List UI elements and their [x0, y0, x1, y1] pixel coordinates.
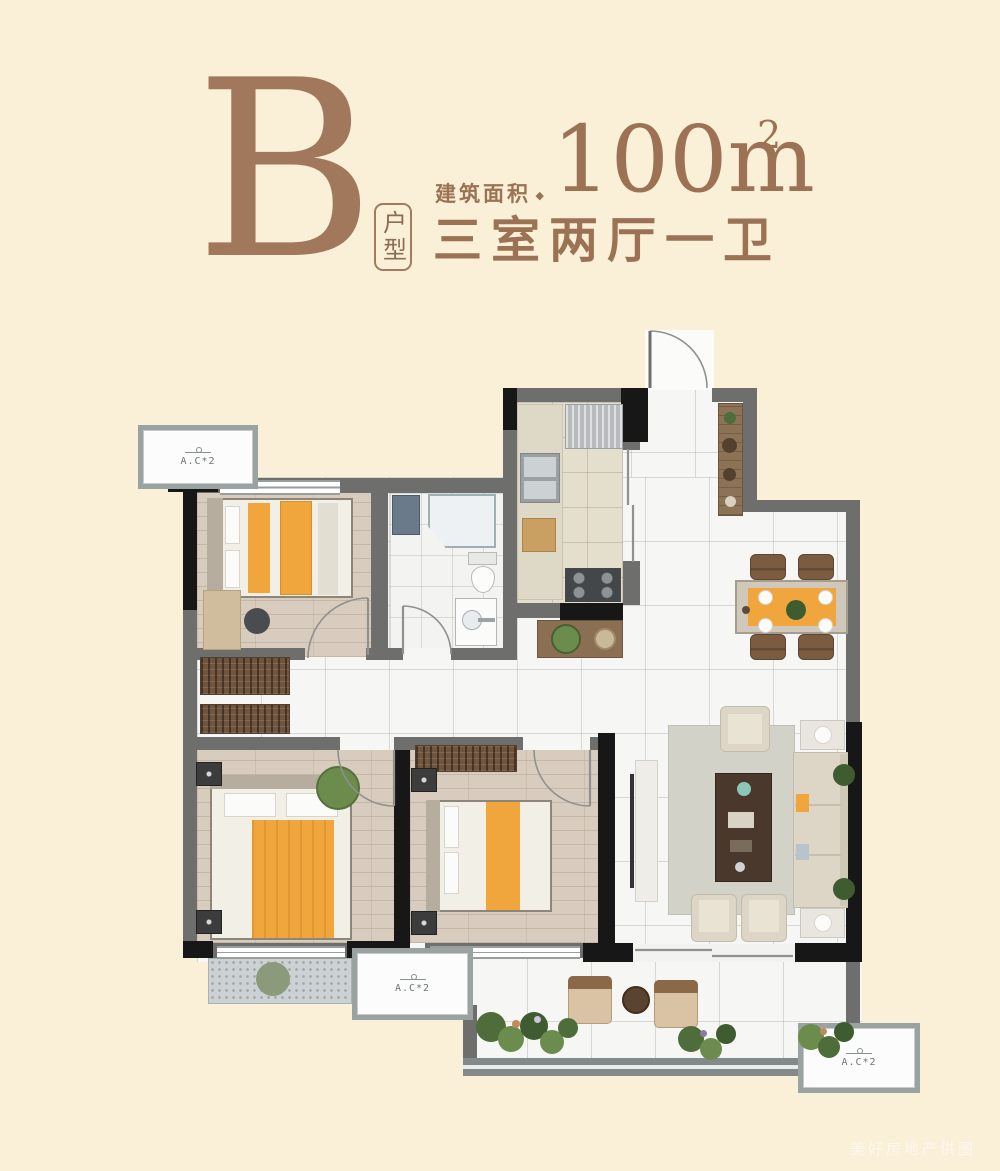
bathroom-door-arc [403, 606, 451, 654]
bedroom1-door-arc [308, 598, 368, 658]
watermark: 美好房地产供图 [850, 1138, 976, 1159]
master-door-arc [338, 750, 394, 806]
door-arcs-layer [0, 0, 1000, 1171]
kitchen-sliding-door [628, 449, 633, 562]
balcony-sliding-door-lines [635, 950, 793, 956]
bedroom2-door-arc [534, 750, 590, 806]
floorplan-page: B 户型 建筑面积 ◆ 100m 2 三室两厅一卫 [0, 0, 1000, 1171]
entry-door-arc [650, 331, 707, 388]
